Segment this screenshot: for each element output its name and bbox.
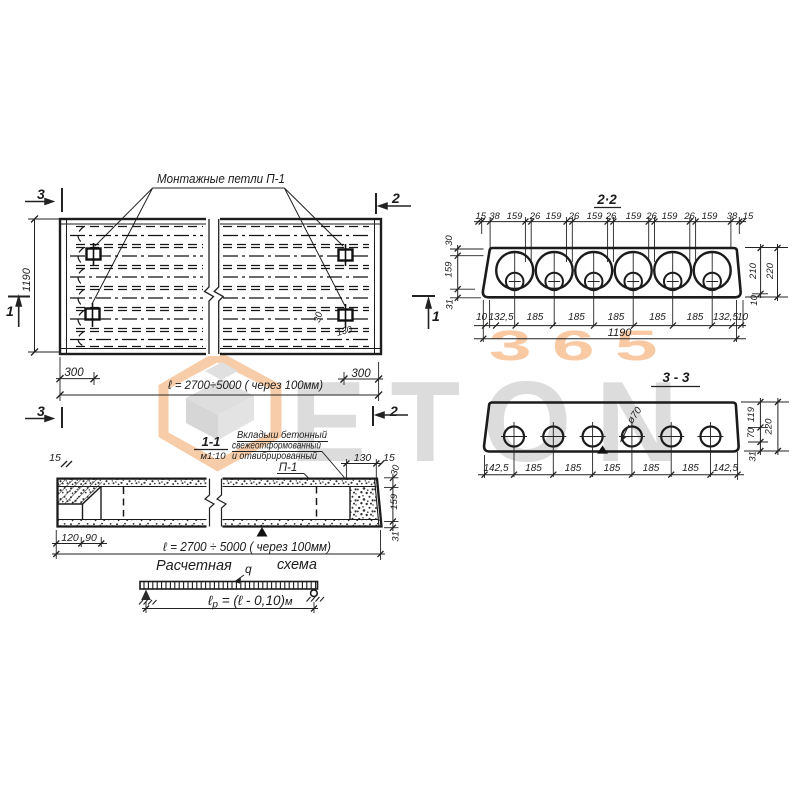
svg-text:м1:10: м1:10 — [200, 451, 226, 462]
svg-text:185: 185 — [604, 463, 621, 474]
svg-text:10: 10 — [476, 312, 488, 323]
svg-text:159: 159 — [702, 211, 719, 222]
svg-text:3 - 3: 3 - 3 — [662, 370, 690, 385]
svg-text:15: 15 — [475, 211, 486, 222]
svg-text:31: 31 — [748, 451, 759, 462]
svg-text:1: 1 — [6, 303, 14, 319]
svg-text:185: 185 — [568, 312, 585, 323]
svg-text:132,5: 132,5 — [713, 312, 738, 323]
svg-text:15: 15 — [49, 452, 61, 464]
svg-text:300: 300 — [64, 367, 84, 379]
svg-text:30: 30 — [444, 235, 455, 246]
svg-text:Монтажные петли П-1: Монтажные петли П-1 — [157, 171, 285, 186]
svg-text:1: 1 — [432, 308, 440, 324]
svg-text:31: 31 — [445, 299, 456, 310]
svg-text:119: 119 — [746, 406, 757, 422]
svg-text:ℓр = (ℓ - 0,10)м: ℓр = (ℓ - 0,10)м — [208, 593, 293, 611]
svg-text:185: 185 — [687, 312, 704, 323]
svg-text:10: 10 — [737, 312, 749, 323]
svg-text:2·2: 2·2 — [596, 192, 617, 207]
svg-text:220: 220 — [764, 418, 775, 436]
svg-text:ℓ = 2700÷5000 ( через 100мм): ℓ = 2700÷5000 ( через 100мм) — [168, 378, 323, 392]
svg-text:132,5: 132,5 — [488, 312, 513, 323]
svg-text:ℓ = 2700 ÷ 5000 ( через 100мм): ℓ = 2700 ÷ 5000 ( через 100мм) — [163, 540, 331, 554]
svg-text:159: 159 — [444, 261, 455, 278]
svg-text:3: 3 — [37, 186, 45, 202]
svg-text:26: 26 — [529, 211, 541, 222]
svg-text:2: 2 — [389, 403, 398, 419]
svg-text:142,5: 142,5 — [713, 463, 738, 474]
svg-text:185: 185 — [527, 312, 544, 323]
svg-text:Расчетная: Расчетная — [156, 558, 232, 574]
svg-text:210: 210 — [748, 262, 759, 280]
svg-text:70: 70 — [746, 427, 757, 438]
svg-text:159: 159 — [507, 211, 524, 222]
svg-text:159: 159 — [626, 211, 643, 222]
svg-text:10: 10 — [749, 294, 760, 305]
svg-text:1190: 1190 — [21, 267, 33, 292]
svg-text:365: 365 — [489, 322, 678, 370]
svg-text:1190: 1190 — [608, 327, 633, 339]
svg-text:2: 2 — [391, 190, 400, 206]
svg-text:П-1: П-1 — [279, 462, 298, 474]
svg-text:185: 185 — [565, 463, 582, 474]
svg-text:159: 159 — [546, 211, 563, 222]
svg-text:159: 159 — [587, 211, 604, 222]
svg-text:185: 185 — [682, 463, 699, 474]
svg-text:159: 159 — [389, 493, 400, 510]
svg-text:300: 300 — [351, 368, 371, 380]
svg-text:185: 185 — [649, 312, 666, 323]
svg-text:15: 15 — [383, 452, 395, 464]
svg-text:90: 90 — [85, 532, 97, 544]
svg-text:q: q — [245, 562, 252, 576]
svg-text:3: 3 — [37, 403, 45, 419]
svg-text:159: 159 — [662, 211, 679, 222]
svg-text:120: 120 — [61, 532, 79, 544]
svg-text:220: 220 — [765, 262, 776, 280]
svg-text:185: 185 — [608, 312, 625, 323]
svg-text:1-1: 1-1 — [202, 434, 221, 449]
svg-text:185: 185 — [643, 463, 660, 474]
svg-text:130: 130 — [354, 452, 372, 464]
svg-text:185: 185 — [525, 463, 542, 474]
svg-text:31: 31 — [391, 531, 402, 542]
svg-text:схема: схема — [277, 557, 317, 573]
